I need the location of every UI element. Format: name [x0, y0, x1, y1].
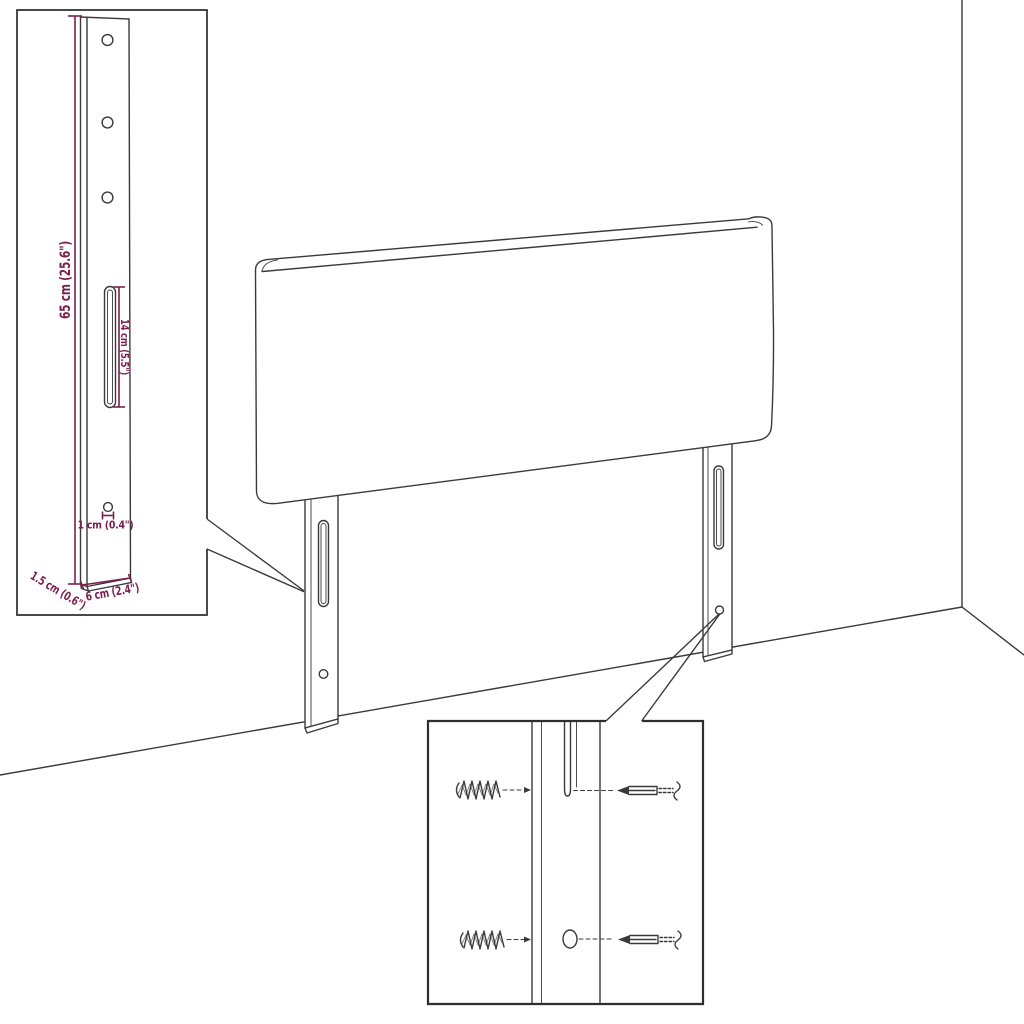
screw-inset-border — [428, 721, 703, 1004]
bracket-inset: 65 cm (25.6") 14 cm (5.5") 1 cm (0.4") 6… — [17, 10, 207, 615]
dim-label-height: 65 cm (25.6") — [58, 241, 74, 319]
floor-line-right — [962, 607, 1024, 655]
callout-line — [607, 615, 719, 721]
panel-outline — [256, 217, 774, 504]
dim-label-slot: 14 cm (5.5") — [118, 319, 130, 375]
headboard-panel — [256, 217, 774, 504]
headboard-assembly-diagram: 65 cm (25.6") 14 cm (5.5") 1 cm (0.4") 6… — [0, 0, 1024, 1024]
diagram-page: 65 cm (25.6") 14 cm (5.5") 1 cm (0.4") 6… — [0, 0, 1024, 1024]
callout-line — [642, 615, 720, 721]
right-leg — [703, 432, 732, 662]
callout-bracket-detail — [207, 519, 304, 592]
left-leg — [305, 488, 338, 733]
dim-label-hole: 1 cm (0.4") — [78, 519, 134, 532]
screw-inset — [428, 721, 703, 1004]
callout-screw-detail — [607, 615, 720, 721]
